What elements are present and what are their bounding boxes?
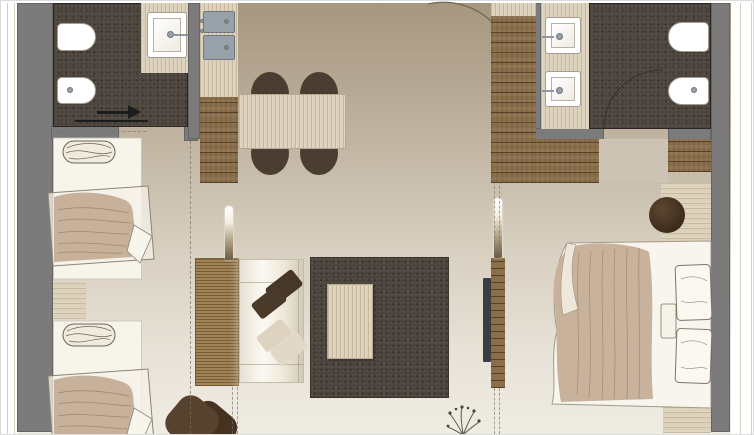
faucet-icon: [556, 87, 563, 94]
page-margin-line: [740, 3, 741, 434]
faucet-spout: [542, 90, 554, 92]
page-margin-line: [751, 3, 752, 434]
nightstand: [663, 390, 711, 433]
washbasin-bowl: [551, 77, 575, 101]
page-margin-line: [14, 3, 15, 434]
wall-left: [17, 3, 53, 432]
tap-icon: [200, 29, 204, 33]
floor-lamp: [225, 206, 233, 260]
kitchen-base-cabinet: [200, 97, 238, 183]
coffee-table: [327, 284, 373, 359]
faucet-icon: [167, 31, 174, 38]
guide-line: [494, 388, 495, 434]
bidet-faucet-icon: [67, 87, 73, 93]
guide-line: [237, 387, 238, 434]
door-landing: [599, 139, 668, 183]
table-lamp: [649, 197, 685, 233]
tv-partition: [491, 258, 505, 388]
faucet-spout: [542, 36, 554, 38]
nightstand: [53, 283, 86, 319]
guide-line: [494, 181, 495, 258]
drain-icon: [224, 45, 229, 50]
washbasin-bowl: [551, 23, 575, 48]
sofa-seam: [240, 364, 303, 365]
floor-lamp: [494, 198, 502, 258]
bidet: [668, 77, 709, 105]
arrow-head-icon: [128, 105, 141, 119]
drain-icon: [224, 19, 229, 24]
bidet: [57, 77, 96, 104]
threshold-line: [75, 120, 148, 122]
guide-line: [232, 387, 233, 434]
tap-icon: [200, 19, 204, 23]
arrow-shaft: [97, 111, 128, 114]
wall-bathroom-left-bottom: [51, 126, 119, 139]
wall-kitchen: [188, 3, 200, 139]
guide-line: [190, 141, 191, 434]
guide-line: [499, 388, 500, 434]
faucet-spout: [174, 34, 188, 36]
washbasin: [147, 12, 187, 58]
washbasin: [545, 17, 581, 54]
guide-line: [56, 131, 146, 132]
toilet: [57, 23, 96, 51]
page-margin-line: [7, 3, 8, 434]
wardrobe-top-cap: [491, 3, 536, 17]
wall-right: [711, 3, 730, 432]
dresser: [668, 139, 711, 172]
washbasin: [545, 71, 581, 107]
kitchen-sink-upper: [203, 11, 235, 33]
wardrobe-strip: [534, 139, 599, 183]
kitchen-sink-lower: [203, 35, 235, 60]
dining-table: [238, 94, 346, 149]
tv-screen: [483, 278, 491, 362]
toilet: [668, 22, 709, 52]
sideboard: [195, 258, 239, 386]
guide-line: [499, 181, 500, 258]
bidet-faucet-icon: [691, 87, 697, 93]
floor-plan: [0, 0, 754, 435]
faucet-icon: [556, 33, 563, 40]
wardrobe-column: [491, 16, 536, 183]
